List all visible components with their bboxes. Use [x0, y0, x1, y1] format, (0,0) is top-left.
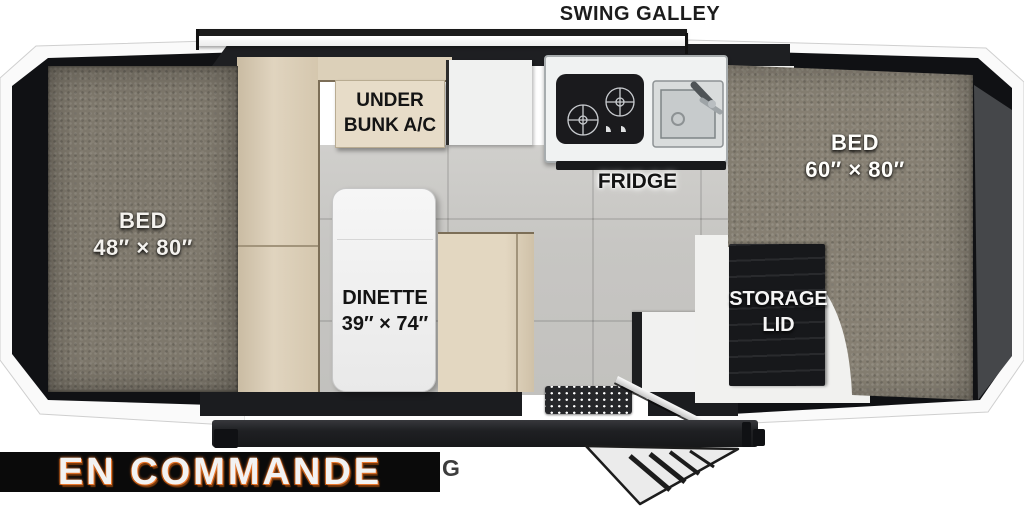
storage-lid-label: STORAGE LID [716, 286, 841, 338]
under-bunk-ac-label: UNDER BUNK A/C [344, 89, 436, 138]
awning-label-partial: G [442, 455, 460, 482]
frame-rail-tab-right2 [753, 429, 765, 446]
entry-step-icon [578, 444, 743, 508]
fridge-label: FRIDGE [575, 168, 700, 195]
frame-rail-tab-right [742, 422, 751, 447]
sink-icon [652, 80, 724, 150]
dinette-bench-right [438, 232, 534, 392]
swing-galley-rail [198, 29, 687, 46]
body-bottom-inset-left [200, 392, 522, 416]
bench-seam [237, 245, 318, 247]
rail-end-right [685, 33, 688, 54]
table-seam [337, 239, 433, 240]
dinette-bench-left [237, 57, 320, 392]
bench-seam [516, 234, 518, 392]
bed-left-label: BED 48″ × 80″ [48, 208, 238, 262]
frame-rail [212, 420, 758, 447]
rail-end-left [196, 29, 199, 50]
stove-icon [556, 74, 644, 144]
dinette-label: DINETTE 39″ × 74″ [325, 285, 445, 337]
frame-rail-tab-left [214, 429, 238, 448]
status-banner-text: EN COMMANDE [58, 451, 382, 494]
entry-mat [545, 386, 632, 414]
bed-left-mattress: BED 48″ × 80″ [48, 66, 238, 392]
floorplan-canvas: UNDER BUNK A/C FRIDGE DINET [0, 0, 1024, 508]
dinette-table: DINETTE 39″ × 74″ [332, 188, 436, 392]
bunk-bench-top [318, 57, 452, 82]
counter-cabinet [446, 60, 532, 145]
status-banner: EN COMMANDE [0, 452, 440, 492]
bed-right-label: BED 60″ × 80″ [730, 130, 980, 184]
under-bunk-ac-cabinet: UNDER BUNK A/C [335, 80, 445, 148]
swing-galley-title: SWING GALLEY [545, 1, 735, 27]
